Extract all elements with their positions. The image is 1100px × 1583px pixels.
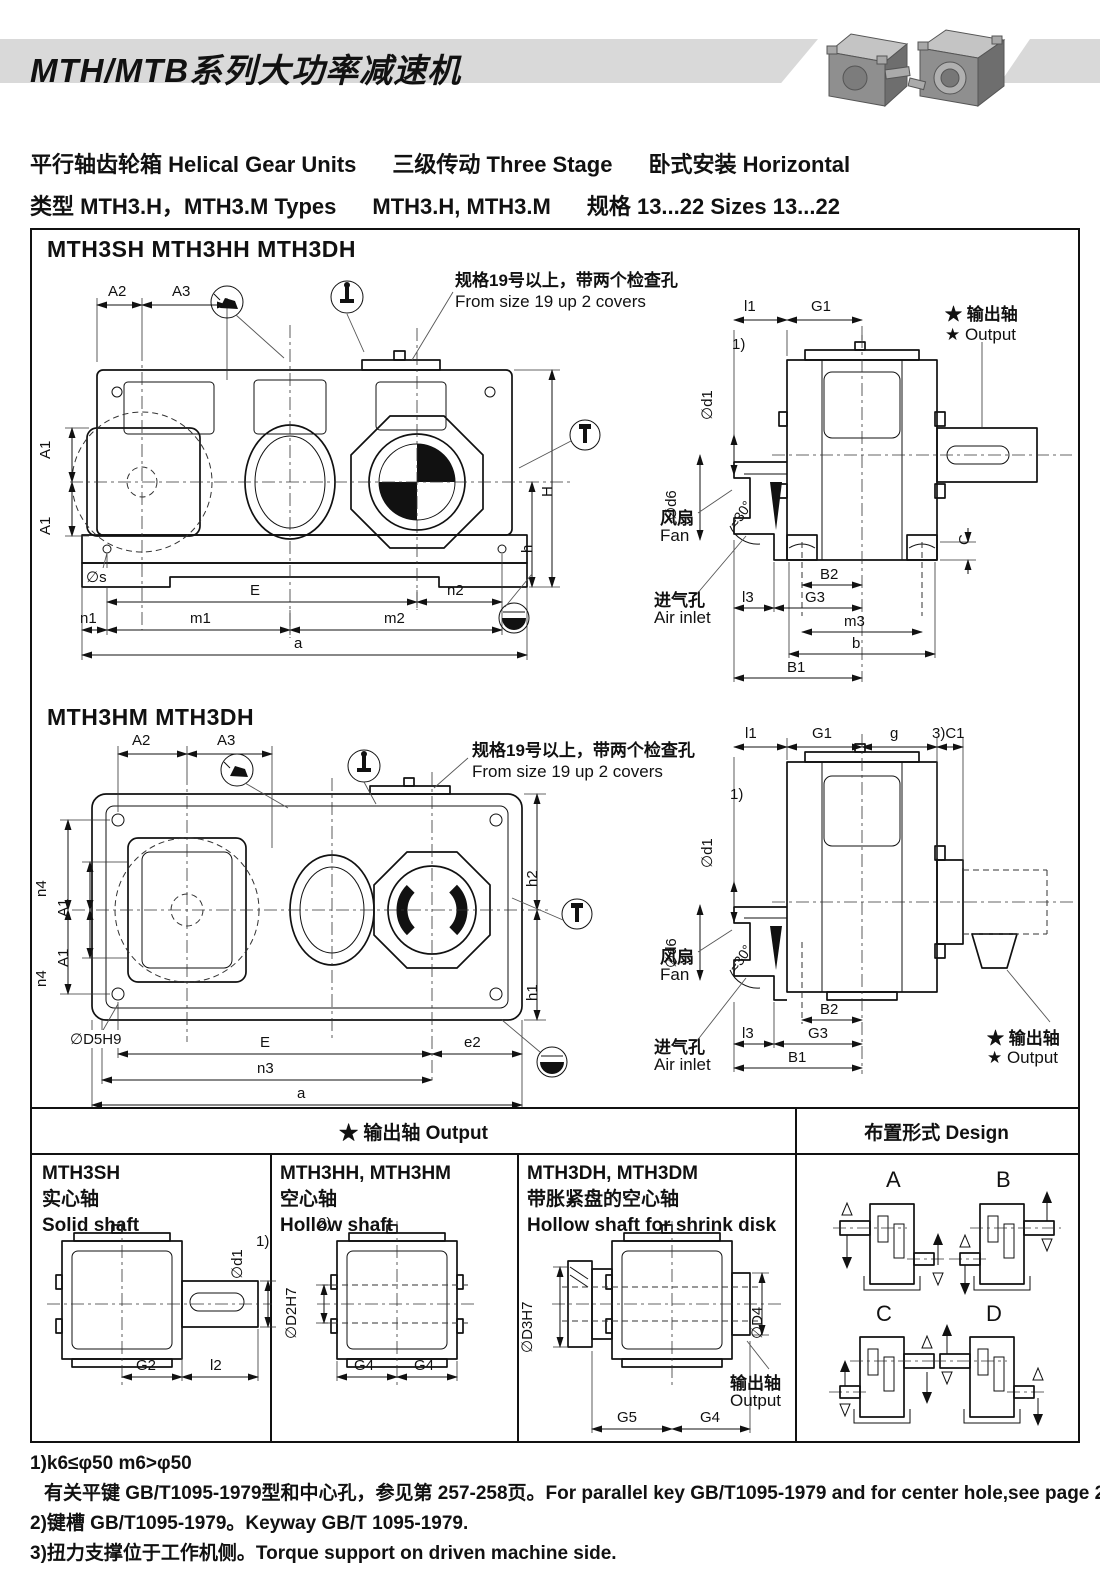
footnote-2: 2)键槽 GB/T1095-1979。Keyway GB/T 1095-1979… xyxy=(30,1509,1100,1539)
dim-n4: n4 xyxy=(33,970,50,987)
output-shaft-label-cn: ★ 输出轴 xyxy=(987,1024,1060,1049)
section-mth3hm: MTH3HM MTH3DH 规格19号以上，带两个检查孔 From size 1… xyxy=(32,702,1078,1107)
dim-a: a xyxy=(294,635,302,652)
section1-drawings xyxy=(32,230,1078,702)
dim-G4: G4 xyxy=(354,1357,374,1374)
fan-label-en: Fan xyxy=(660,965,689,985)
dim-G1: G1 xyxy=(811,298,831,315)
breather-icon xyxy=(331,281,363,313)
dim-B1: B1 xyxy=(787,659,805,676)
dim-phi-D3H7: ∅D3H7 xyxy=(518,1302,536,1353)
design-B-schematic xyxy=(949,1191,1061,1295)
output-shaft-label-en: ★ Output xyxy=(945,325,1016,345)
dim-a: a xyxy=(297,1085,305,1102)
oil-level-icon xyxy=(570,420,600,450)
design-A-label: A xyxy=(886,1167,901,1193)
intro-line-1: 平行轴齿轮箱 Helical Gear Units三级传动 Three Stag… xyxy=(30,144,886,186)
dim-n1: n1 xyxy=(80,610,97,627)
air-inlet-label-en: Air inlet xyxy=(654,1055,711,1075)
dim-m1: m1 xyxy=(190,610,211,627)
dim-G2: G2 xyxy=(136,1357,156,1374)
dim-phi-D5H9: ∅D5H9 xyxy=(68,1030,123,1048)
dim-ref1: 1) xyxy=(256,1233,269,1250)
design-B-label: B xyxy=(996,1167,1011,1193)
dim-A3: A3 xyxy=(217,732,235,749)
intro-seg: 三级传动 Three Stage xyxy=(392,152,612,177)
dim-g: g xyxy=(890,725,898,742)
shaft-type-drawings xyxy=(32,1109,1078,1443)
dim-n3: n3 xyxy=(257,1060,274,1077)
gearbox-photo-1 xyxy=(815,22,915,110)
dim-G3: G3 xyxy=(805,589,825,606)
dim-E: E xyxy=(250,582,260,599)
page-title: MTH/MTB系列大功率减速机 xyxy=(30,44,461,92)
gearbox-photo-2 xyxy=(908,20,1012,112)
dim-C1: 3)C1 xyxy=(932,725,965,742)
dim-B2: B2 xyxy=(820,1001,838,1018)
dim-ref2: 2) xyxy=(318,1215,331,1232)
dim-m3: m3 xyxy=(844,613,865,630)
footnote-1b: 有关平键 GB/T1095-1979型和中心孔，参见第 257-258页。For… xyxy=(30,1479,1100,1509)
oil-level-icon xyxy=(562,899,592,929)
dim-phi-s: ∅s xyxy=(84,568,109,586)
dim-B1: B1 xyxy=(788,1049,806,1066)
dim-H: H xyxy=(539,486,556,497)
dim-l2: l2 xyxy=(210,1357,222,1374)
intro-text: 平行轴齿轮箱 Helical Gear Units三级传动 Three Stag… xyxy=(30,144,886,228)
dim-n2: n2 xyxy=(447,582,464,599)
fan-blade-section xyxy=(770,482,782,530)
dim-G3: G3 xyxy=(808,1025,828,1042)
intro-seg: 卧式安装 Horizontal xyxy=(648,152,850,177)
drawing-frame: MTH3SH MTH3HH MTH3DH 规格19号以上，带两个检查孔 From… xyxy=(30,228,1080,1443)
dim-G5: G5 xyxy=(617,1409,637,1426)
dim-m2: m2 xyxy=(384,610,405,627)
intro-seg: 平行轴齿轮箱 Helical Gear Units xyxy=(30,152,356,177)
design-D-label: D xyxy=(986,1301,1002,1327)
dim-G4: G4 xyxy=(414,1357,434,1374)
dim-A1: A1 xyxy=(55,899,72,917)
intro-seg: 类型 MTH3.H，MTH3.M Types xyxy=(30,194,336,219)
dim-phi-d1: ∅d1 xyxy=(698,390,716,420)
solid-shaft-drawing xyxy=(56,1225,258,1367)
dim-e2: e2 xyxy=(464,1034,481,1051)
dim-E: E xyxy=(260,1034,270,1051)
design-A-schematic xyxy=(833,1203,945,1290)
dim-phi-d1: ∅d1 xyxy=(228,1249,246,1279)
dim-ref1: 1) xyxy=(730,786,743,803)
breather-icon xyxy=(348,750,380,782)
dim-A2: A2 xyxy=(132,732,150,749)
output-shaft-callout-en: Output xyxy=(730,1391,781,1411)
intro-seg: MTH3.H, MTH3.M xyxy=(372,194,550,219)
catalog-page: MTH/MTB系列大功率减速机 平行轴齿轮箱 Helical Gear Unit… xyxy=(0,0,1100,1583)
deco-parallelogram xyxy=(1000,39,1100,83)
oil-drain-icon xyxy=(499,603,529,633)
section2-drawings xyxy=(32,702,1078,1107)
dim-l1: l1 xyxy=(744,298,756,315)
shrink-disk-shaft-drawing xyxy=(568,1225,750,1367)
dim-B2: B2 xyxy=(820,566,838,583)
intro-line-2: 类型 MTH3.H，MTH3.M TypesMTH3.H, MTH3.M规格 1… xyxy=(30,186,886,228)
end-view-housing xyxy=(734,342,1037,560)
dim-n4: n4 xyxy=(33,880,50,897)
output-shaft-label-cn: ★ 输出轴 xyxy=(945,300,1018,325)
oil-drain-icon xyxy=(537,1047,567,1077)
dim-l1: l1 xyxy=(745,725,757,742)
dim-A1: A1 xyxy=(37,441,54,459)
dim-A1: A1 xyxy=(37,517,54,535)
dim-l3: l3 xyxy=(742,589,754,606)
design-C-schematic xyxy=(829,1336,941,1423)
dim-h1: h1 xyxy=(524,984,541,1001)
dim-phi-d1: ∅d1 xyxy=(698,838,716,868)
dim-h: h xyxy=(519,545,536,553)
dim-l3: l3 xyxy=(742,1025,754,1042)
dim-A3: A3 xyxy=(172,283,190,300)
dim-phi-D2H7: ∅D2H7 xyxy=(282,1288,300,1339)
output-table: ★ 输出轴 Output 布置形式 Design MTH3SH 实心轴 Soli… xyxy=(32,1107,1078,1443)
dim-b: b xyxy=(852,635,860,652)
dim-G1: G1 xyxy=(812,725,832,742)
intro-seg: 规格 13...22 Sizes 13...22 xyxy=(587,194,840,219)
dim-ref1: 1) xyxy=(732,336,745,353)
dim-A2: A2 xyxy=(108,283,126,300)
oil-fill-icon xyxy=(221,754,253,786)
dim-h2: h2 xyxy=(524,870,541,887)
footnote-3: 3)扭力支撑位于工作机侧。Torque support on driven ma… xyxy=(30,1539,1100,1569)
fan-blade-section xyxy=(770,926,782,970)
dim-C: C xyxy=(956,534,973,545)
dim-phi-D4: ∅D4 xyxy=(748,1307,766,1339)
dim-G4: G4 xyxy=(700,1409,720,1426)
design-C-label: C xyxy=(876,1301,892,1327)
section-mth3sh: MTH3SH MTH3HH MTH3DH 规格19号以上，带两个检查孔 From… xyxy=(32,230,1078,702)
design-D-schematic xyxy=(933,1324,1045,1426)
footnote-1: 1)k6≤φ50 m6>φ50 xyxy=(30,1449,1100,1479)
footnotes: 1)k6≤φ50 m6>φ50 有关平键 GB/T1095-1979型和中心孔，… xyxy=(30,1449,1100,1569)
fan-label-en: Fan xyxy=(660,526,689,546)
air-inlet-label-en: Air inlet xyxy=(654,608,711,628)
output-shaft-label-en: ★ Output xyxy=(987,1048,1058,1068)
dim-A1: A1 xyxy=(55,949,72,967)
